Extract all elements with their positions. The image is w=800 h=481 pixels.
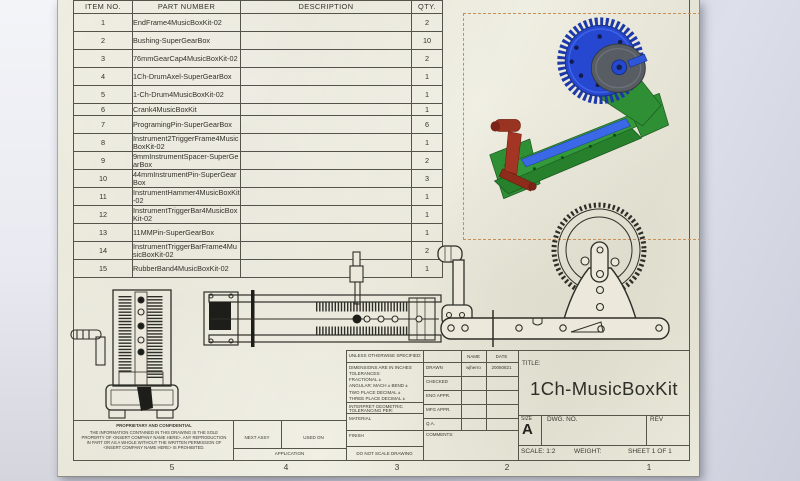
bom-row[interactable]: 51-Ch-Drum4MusicBoxKit-021 — [74, 86, 443, 104]
titleblock-line — [518, 350, 519, 460]
used-on-label: USED ON — [281, 435, 346, 440]
red-pin-knob — [529, 183, 536, 190]
titleblock-line — [346, 446, 423, 447]
bom-header-cell: ITEM NO. — [74, 1, 133, 14]
finish-label: FINISH — [349, 433, 364, 438]
bom-cell-qty: 2 — [412, 152, 443, 170]
bom-cell-item: 2 — [74, 32, 133, 50]
titleblock-line — [73, 420, 346, 421]
bom-cell-description — [241, 50, 412, 68]
date-header: DATE — [486, 354, 517, 359]
bom-cell-item: 4 — [74, 68, 133, 86]
titleblock-line — [518, 445, 689, 446]
interpret-geometric: INTERPRET GEOMETRIC TOLERANCING PER: — [349, 405, 421, 414]
bom-table[interactable]: ITEM NO.PART NUMBERDESCRIPTIONQTY. 1EndF… — [73, 0, 443, 278]
bom-cell-item: 15 — [74, 260, 133, 278]
bom-cell-qty: 1 — [412, 68, 443, 86]
zone-number: 5 — [157, 462, 187, 472]
bom-cell-part: EndFrame4MusicBoxKit-02 — [133, 14, 241, 32]
bom-cell-description — [241, 116, 412, 134]
titleblock-line — [423, 404, 518, 405]
weight-label: WEIGHT: — [574, 449, 601, 454]
cad-drawing-viewport[interactable]: ITEM NO.PART NUMBERDESCRIPTIONQTY. 1EndF… — [0, 0, 800, 481]
bom-cell-part: Instrument2TriggerFrame4MusicBoxKit-02 — [133, 134, 241, 152]
bom-cell-item: 12 — [74, 206, 133, 224]
bom-header-cell: PART NUMBER — [133, 1, 241, 14]
bom-cell-part: 44mmInstrumentPin-SuperGearBox — [133, 170, 241, 188]
bom-cell-part: 1-Ch-Drum4MusicBoxKit-02 — [133, 86, 241, 104]
bom-cell-description — [241, 68, 412, 86]
bom-cell-description — [241, 188, 412, 206]
sheet-of-label: SHEET 1 OF 1 — [628, 449, 672, 454]
dwg-no-label: DWG. NO. — [547, 417, 578, 422]
bom-cell-description — [241, 14, 412, 32]
bom-cell-item: 7 — [74, 116, 133, 134]
titleblock-line — [423, 376, 518, 377]
bom-cell-item: 8 — [74, 134, 133, 152]
bom-cell-description — [241, 152, 412, 170]
titleblock-line — [461, 350, 462, 430]
front-view-drawing[interactable] — [66, 282, 206, 422]
bom-row[interactable]: 7ProgramingPin-SuperGearBox6 — [74, 116, 443, 134]
bom-cell-part: Crank4MusicBoxKit — [133, 104, 241, 116]
red-handle-cap — [491, 121, 500, 131]
titleblock-line — [423, 418, 518, 419]
bom-cell-qty: 6 — [412, 116, 443, 134]
bom-cell-description — [241, 32, 412, 50]
bom-cell-part: InstrumentTriggerBar4MusicBoxKit-02 — [133, 206, 241, 224]
do-not-scale-label: DO NOT SCALE DRAWING — [346, 451, 423, 456]
proprietary-heading: PROPRIETARY AND CONFIDENTIAL — [80, 423, 228, 428]
approval-label: ENG APPR. — [426, 393, 460, 398]
approval-label: CHECKED — [426, 379, 460, 384]
bom-cell-part: 76mmGearCap4MusicBoxKit-02 — [133, 50, 241, 68]
bom-cell-qty: 1 — [412, 104, 443, 116]
zone-number: 4 — [271, 462, 301, 472]
bolt-dot — [613, 134, 616, 137]
frame-bottom-line — [73, 460, 690, 461]
bom-cell-item: 5 — [74, 86, 133, 104]
bom-row[interactable]: 8Instrument2TriggerFrame4MusicBoxKit-021 — [74, 134, 443, 152]
bom-row[interactable]: 99mmInstrumentSpacer-SuperGearBox2 — [74, 152, 443, 170]
bom-cell-description — [241, 224, 412, 242]
approval-name: wjherro — [461, 365, 486, 370]
bom-row[interactable]: 2Bushing-SuperGearBox10 — [74, 32, 443, 50]
zone-number: 1 — [634, 462, 664, 472]
bom-body: 1EndFrame4MusicBoxKit-0222Bushing-SuperG… — [74, 14, 443, 278]
bom-cell-description — [241, 206, 412, 224]
titleblock-line — [518, 415, 689, 416]
titleblock-line — [346, 430, 423, 431]
material-label: MATERIAL — [349, 416, 371, 421]
titleblock-line — [423, 430, 518, 431]
bom-cell-qty: 2 — [412, 14, 443, 32]
zone-number: 2 — [492, 462, 522, 472]
approval-label: DRAWN — [426, 365, 460, 370]
titleblock-line — [423, 390, 518, 391]
bom-cell-part: 11MMPin-SuperGearBox — [133, 224, 241, 242]
bom-cell-item: 9 — [74, 152, 133, 170]
titleblock-line — [346, 350, 347, 460]
unless-otherwise-specified: UNLESS OTHERWISE SPECIFIED: — [347, 353, 423, 358]
titleblock-line — [541, 415, 542, 445]
bom-cell-part: InstrumentHammer4MusicBoxKit-02 — [133, 188, 241, 206]
bom-cell-item: 1 — [74, 14, 133, 32]
bom-cell-qty: 10 — [412, 32, 443, 50]
bom-cell-item: 11 — [74, 188, 133, 206]
titleblock-line — [233, 448, 346, 449]
bom-row[interactable]: 6Crank4MusicBoxKit1 — [74, 104, 443, 116]
titleblock-line — [423, 350, 424, 460]
bom-row[interactable]: 12InstrumentTriggerBar4MusicBoxKit-021 — [74, 206, 443, 224]
bom-row[interactable]: 1EndFrame4MusicBoxKit-022 — [74, 14, 443, 32]
titleblock-line — [646, 415, 647, 445]
scale-value: SCALE: 1:2 — [521, 449, 555, 454]
bom-header-row: ITEM NO.PART NUMBERDESCRIPTIONQTY. — [74, 1, 443, 14]
drawing-title: 1Ch-MusicBoxKit — [519, 378, 689, 400]
approval-label: Q.A. — [426, 421, 460, 426]
bom-cell-qty: 1 — [412, 86, 443, 104]
titleblock-line — [346, 362, 423, 363]
bom-cell-part: Bushing-SuperGearBox — [133, 32, 241, 50]
bolt-dot — [533, 167, 536, 170]
name-header: NAME — [461, 354, 486, 359]
tolerance-lines: DIMENSIONS ARE IN INCHES TOLERANCES: FRA… — [349, 365, 421, 403]
bom-cell-item: 6 — [74, 104, 133, 116]
titleblock-line — [423, 362, 518, 363]
bom-cell-part: 9mmInstrumentSpacer-SuperGearBox — [133, 152, 241, 170]
viewport-background-left — [0, 0, 57, 481]
approval-label: COMMENTS: — [426, 432, 460, 437]
drawing-sheet[interactable]: ITEM NO.PART NUMBERDESCRIPTIONQTY. 1EndF… — [57, 0, 700, 477]
bom-row[interactable]: 1311MMPin-SuperGearBox1 — [74, 224, 443, 242]
application-label: APPLICATION — [233, 451, 346, 456]
bom-cell-qty: 1 — [412, 134, 443, 152]
zone-number: 3 — [382, 462, 412, 472]
hub-hole — [616, 64, 622, 70]
approval-label: MFG APPR. — [426, 407, 460, 412]
next-assy-label: NEXT ASSY — [233, 435, 281, 440]
bom-cell-description — [241, 170, 412, 188]
bom-cell-description — [241, 104, 412, 116]
bolt-dot — [589, 145, 592, 148]
titleblock-line — [281, 420, 282, 448]
approval-date: 20060821 — [486, 365, 517, 370]
size-value: A — [522, 421, 533, 438]
side-view-drawing[interactable] — [431, 200, 700, 350]
bom-cell-part: 1Ch-DrumAxel-SuperGearBox — [133, 68, 241, 86]
bom-header-cell: DESCRIPTION — [241, 1, 412, 14]
bolt-dot — [561, 156, 564, 159]
bom-cell-description — [241, 134, 412, 152]
bom-cell-item: 10 — [74, 170, 133, 188]
bom-row[interactable]: 1044mmInstrumentPin-SuperGearBox3 — [74, 170, 443, 188]
top-view-drawing[interactable] — [196, 250, 446, 350]
bom-header-cell: QTY. — [412, 1, 443, 14]
bom-cell-item: 3 — [74, 50, 133, 68]
bom-row[interactable]: 11InstrumentHammer4MusicBoxKit-021 — [74, 188, 443, 206]
bom-cell-item: 14 — [74, 242, 133, 260]
bom-cell-part: ProgramingPin-SuperGearBox — [133, 116, 241, 134]
rev-label: REV — [650, 417, 663, 422]
bom-cell-qty: 2 — [412, 50, 443, 68]
bom-cell-description — [241, 86, 412, 104]
titleblock-line — [486, 350, 487, 430]
bom-cell-item: 13 — [74, 224, 133, 242]
proprietary-body: THE INFORMATION CONTAINED IN THIS DRAWIN… — [80, 430, 228, 450]
title-label: TITLE: — [522, 361, 541, 366]
bom-row[interactable]: 41Ch-DrumAxel-SuperGearBox1 — [74, 68, 443, 86]
bom-row[interactable]: 376mmGearCap4MusicBoxKit-022 — [74, 50, 443, 68]
bom-cell-qty: 3 — [412, 170, 443, 188]
